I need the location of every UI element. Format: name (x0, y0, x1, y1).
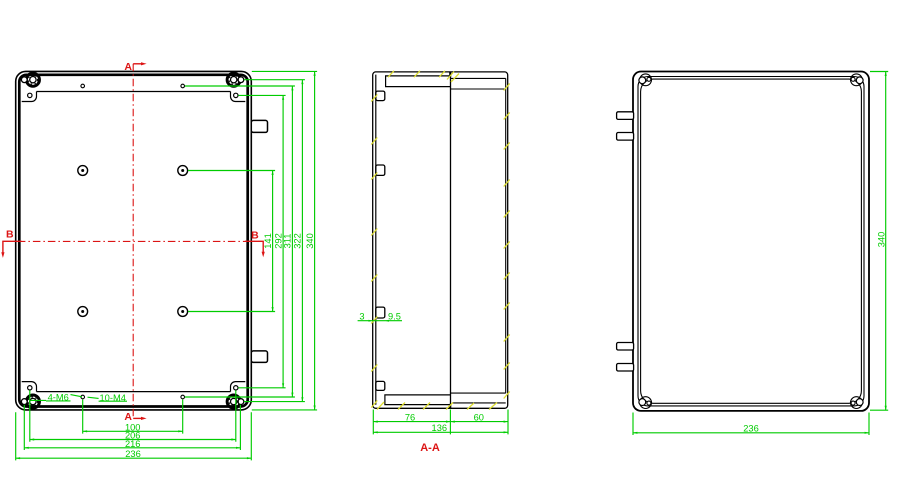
svg-text:236: 236 (743, 424, 759, 434)
svg-text:340: 340 (305, 233, 315, 249)
svg-text:B: B (251, 230, 259, 242)
svg-text:10-M4: 10-M4 (100, 393, 126, 403)
svg-text:340: 340 (876, 232, 886, 248)
svg-text:322: 322 (293, 233, 303, 249)
svg-text:60: 60 (474, 413, 484, 423)
svg-text:141: 141 (263, 233, 273, 249)
svg-text:9.5: 9.5 (388, 312, 401, 322)
svg-text:A-A: A-A (420, 442, 440, 454)
svg-text:A: A (124, 411, 132, 423)
svg-text:3: 3 (359, 311, 364, 321)
svg-text:311: 311 (283, 234, 293, 249)
svg-text:216: 216 (125, 439, 141, 449)
svg-text:76: 76 (405, 413, 415, 423)
svg-text:B: B (6, 229, 14, 241)
svg-text:136: 136 (432, 423, 448, 433)
svg-text:A: A (124, 61, 132, 73)
svg-text:4-M6: 4-M6 (48, 393, 69, 403)
svg-text:236: 236 (125, 449, 141, 459)
